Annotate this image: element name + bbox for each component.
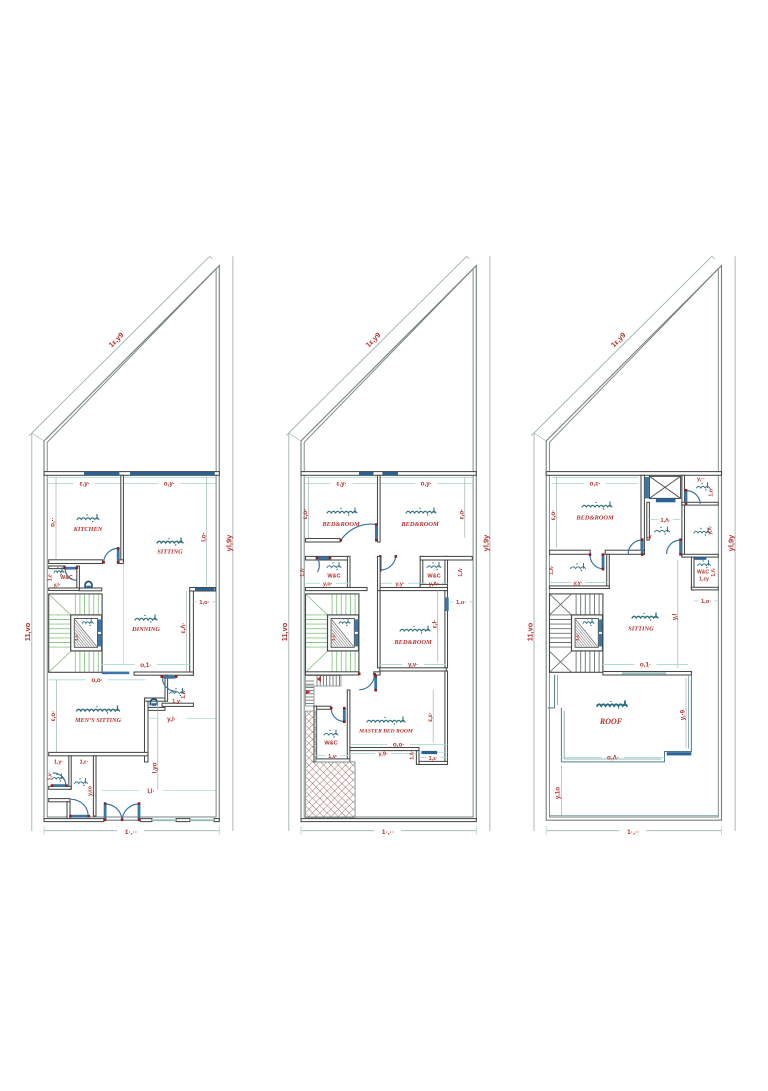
svg-text:1,Λ·: 1,Λ·	[711, 567, 717, 577]
svg-text:l,yo: l,yo	[151, 762, 158, 773]
svg-text:1,v·: 1,v·	[575, 633, 580, 641]
svg-text:BED&ROOM: BED&ROOM	[393, 639, 432, 646]
svg-text:y,v·: y,v·	[408, 662, 418, 669]
svg-text:1,v·: 1,v·	[328, 754, 338, 760]
svg-text:o,o·: o,o·	[393, 742, 405, 749]
svg-text:y,1o: y,1o	[554, 787, 561, 799]
svg-text:MEN’S SITTING: MEN’S SITTING	[74, 717, 121, 724]
svg-text:y,εo: y,εo	[88, 785, 94, 796]
svg-text:MASTER BED ROOM: MASTER BED ROOM	[358, 729, 414, 735]
svg-text:y,··: y,··	[697, 476, 705, 482]
svg-text:BED&ROOM: BED&ROOM	[575, 515, 614, 522]
svg-text:1,ε·: 1,ε·	[429, 756, 438, 762]
svg-text:y,Λ·: y,Λ·	[429, 582, 439, 588]
svg-text:1,o·: 1,o·	[709, 487, 715, 496]
svg-text:W&C: W&C	[324, 741, 337, 747]
svg-text:1·,··: 1·,··	[382, 829, 394, 836]
svg-text:l,o·: l,o·	[200, 532, 207, 541]
svg-text:o,Λ·: o,Λ·	[607, 755, 619, 762]
svg-text:ε,y·: ε,y·	[336, 481, 346, 488]
svg-text:1,Λ·: 1,Λ·	[660, 518, 670, 524]
svg-text:1,Λ·: 1,Λ·	[181, 689, 187, 699]
svg-text:1,Λ·: 1,Λ·	[300, 567, 306, 577]
svg-text:1·,··: 1·,··	[627, 829, 639, 836]
svg-text:11,vo: 11,vo	[280, 622, 289, 641]
svg-text:1,ε·: 1,ε·	[80, 759, 89, 765]
svg-text:y,y·: y,y·	[573, 581, 582, 587]
svg-text:ε,y·: ε,y·	[80, 481, 90, 488]
svg-text:o,··: o,··	[50, 517, 57, 527]
svg-text:1,··: 1,··	[647, 531, 653, 539]
svg-text:y,9·: y,9·	[378, 752, 388, 758]
svg-text:SITTING: SITTING	[628, 626, 654, 633]
svg-text:11,vo: 11,vo	[23, 622, 32, 641]
svg-text:KITCHEN: KITCHEN	[73, 526, 103, 533]
svg-text:o,1·: o,1·	[640, 662, 651, 669]
svg-text:o,y·: o,y·	[164, 481, 175, 488]
svg-text:yl,9y: yl,9y	[482, 534, 491, 552]
svg-text:o,ε·: o,ε·	[590, 481, 601, 488]
svg-text:1,y·: 1,y·	[54, 759, 63, 765]
svg-text:ε,o·: ε,o·	[50, 711, 57, 722]
svg-text:y,o·: y,o·	[323, 582, 333, 588]
svg-text:yl,9y: yl,9y	[225, 534, 234, 552]
svg-text:1,v·: 1,v·	[74, 633, 79, 641]
svg-text:W&C: W&C	[327, 574, 340, 580]
svg-text:BED&ROOM: BED&ROOM	[400, 521, 439, 528]
svg-text:1,Λ·: 1,Λ·	[410, 750, 416, 760]
svg-text:ε,o·: ε,o·	[302, 509, 309, 520]
svg-text:W&C: W&C	[60, 575, 73, 581]
svg-text:y,y·: y,y·	[395, 582, 405, 588]
svg-text:1,v·: 1,v·	[48, 771, 54, 780]
svg-text:1,Λ·: 1,Λ·	[458, 567, 464, 577]
svg-text:ε,o·: ε,o·	[458, 509, 465, 520]
svg-text:y,l: y,l	[671, 613, 678, 620]
svg-text:y,·9: y,·9	[680, 709, 687, 720]
svg-text:W&C: W&C	[697, 569, 709, 575]
svg-text:y,l·: y,l·	[54, 583, 61, 589]
svg-text:1,Λ·: 1,Λ·	[549, 565, 555, 575]
svg-text:DINNING: DINNING	[131, 626, 160, 633]
svg-text:SITTING: SITTING	[157, 549, 183, 556]
svg-text:o,y·: o,y·	[421, 481, 432, 488]
svg-text:W&C: W&C	[427, 574, 440, 580]
svg-text:1,εy: 1,εy	[699, 577, 709, 583]
svg-text:ε,ε·: ε,ε·	[427, 712, 434, 722]
svg-text:o,1·: o,1·	[140, 662, 151, 669]
svg-text:ε,l·: ε,l·	[431, 620, 438, 629]
svg-text:yl,9y: yl,9y	[727, 534, 736, 552]
svg-text:1,o·: 1,o·	[199, 600, 209, 606]
svg-text:1,ε·: 1,ε·	[48, 573, 54, 582]
svg-text:l,l·: l,l·	[147, 788, 154, 795]
svg-text:11,vo: 11,vo	[525, 622, 534, 641]
svg-text:1,y·: 1,y·	[172, 699, 182, 705]
svg-text:1·,··: 1·,··	[125, 829, 137, 836]
svg-text:ε,o·: ε,o·	[550, 510, 557, 521]
svg-text:1,o·: 1,o·	[701, 599, 711, 605]
svg-text:BED&ROOM: BED&ROOM	[321, 521, 360, 528]
svg-text:y,l·: y,l·	[167, 716, 176, 723]
svg-text:ε,Λ·: ε,Λ·	[180, 622, 187, 633]
svg-text:1,o·: 1,o·	[456, 600, 466, 606]
svg-text:1,v·: 1,v·	[331, 633, 336, 641]
svg-text:o,o·: o,o·	[91, 677, 103, 684]
svg-text:ROOF: ROOF	[599, 717, 623, 726]
svg-text:y,Λ·: y,Λ·	[708, 525, 714, 534]
